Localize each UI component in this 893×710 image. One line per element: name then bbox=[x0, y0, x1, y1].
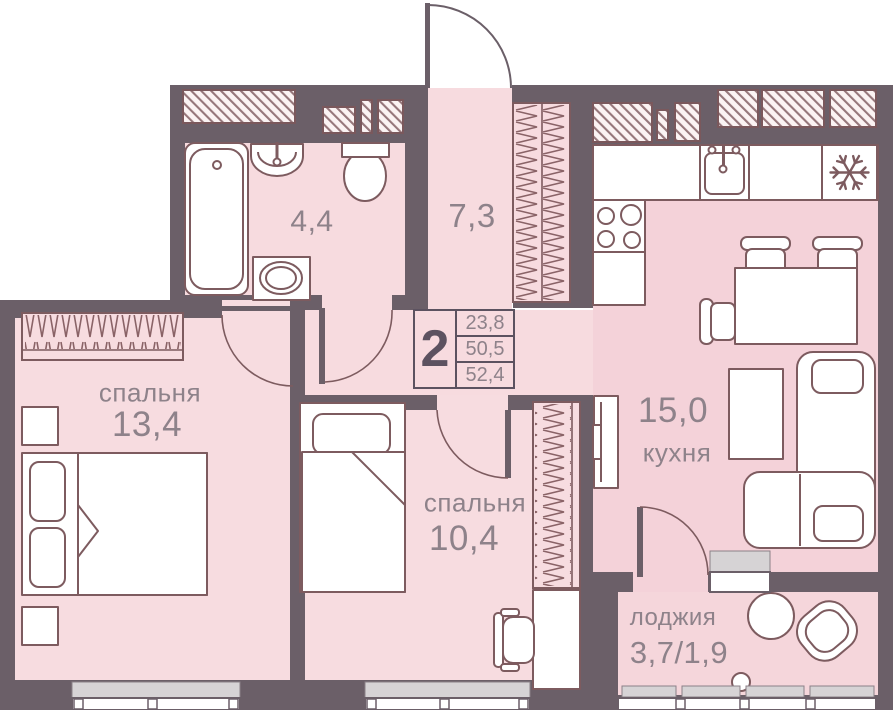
bathroom-door-opening bbox=[322, 295, 392, 310]
stove bbox=[593, 200, 645, 252]
bedroom2-area-label: 10,4 bbox=[429, 519, 499, 559]
bedroom1-wardrobe bbox=[22, 313, 183, 360]
desk bbox=[533, 590, 580, 689]
nightstand bbox=[22, 407, 58, 445]
dining-chair bbox=[700, 299, 735, 344]
entrance-opening bbox=[428, 55, 512, 88]
kitchen-side-table bbox=[729, 369, 783, 459]
fridge bbox=[822, 145, 877, 200]
floor-plan: 4,4 7,3 спальня 13,4 спальня 10,4 15,0 к… bbox=[0, 0, 893, 710]
kitchen-name-label: кухня bbox=[643, 438, 712, 469]
bedroom1-window bbox=[72, 682, 240, 710]
bathroom-area-label: 4,4 bbox=[290, 205, 333, 239]
bedroom2-window bbox=[365, 682, 530, 710]
dining-table bbox=[735, 268, 857, 344]
washing-machine bbox=[253, 257, 310, 300]
loggia-name-label: лоджия bbox=[630, 604, 717, 632]
bedroom2-name-label: спальня bbox=[424, 488, 526, 519]
kitchen-sink bbox=[700, 145, 749, 200]
bedroom1-name-label: спальня bbox=[99, 378, 201, 409]
loggia-glazing bbox=[618, 686, 876, 710]
office-chair bbox=[494, 609, 534, 671]
bedroom1-area-label: 13,4 bbox=[112, 405, 182, 445]
tv-unit bbox=[593, 396, 618, 488]
loggia-area-label: 3,7/1,9 bbox=[630, 635, 728, 671]
bedroom2-wardrobe bbox=[533, 402, 580, 588]
total-area-value: 52,4 bbox=[457, 363, 513, 387]
apartment-area-value: 50,5 bbox=[457, 337, 513, 363]
loggia-door-opening bbox=[633, 572, 708, 592]
nightstand bbox=[22, 607, 58, 645]
living-area-value: 23,8 bbox=[457, 311, 513, 337]
loggia-table bbox=[748, 593, 794, 639]
hallway-wardrobe bbox=[513, 103, 570, 302]
toilet bbox=[342, 143, 389, 201]
kitchen-cabinet bbox=[593, 252, 645, 305]
double-bed bbox=[22, 453, 207, 595]
bathroom-sink bbox=[251, 142, 303, 176]
hallway-area-label: 7,3 bbox=[448, 197, 495, 235]
single-bed bbox=[300, 403, 405, 592]
rooms-count: 2 bbox=[415, 311, 457, 387]
kitchen-loggia-window bbox=[710, 551, 770, 592]
bedroom2-door-opening bbox=[437, 395, 508, 410]
apartment-info-box: 2 23,8 50,5 52,4 bbox=[413, 309, 515, 389]
bathtub bbox=[185, 143, 248, 295]
kitchen-area-label: 15,0 bbox=[638, 391, 708, 431]
